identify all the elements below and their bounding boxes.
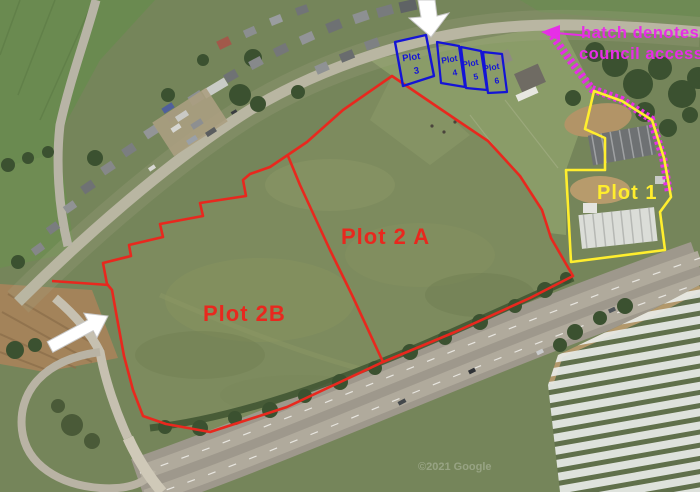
imagery-watermark: ©2021 Google [418, 461, 492, 473]
tree [87, 150, 103, 166]
note-line-1: hatch denotes [581, 24, 699, 42]
tree [565, 90, 581, 106]
plot1-label: Plot 1 [597, 182, 657, 204]
tree [161, 88, 175, 102]
plot2b-label: Plot 2B [203, 301, 286, 326]
aerial-plot-plan: Plot 1 Plot 2 A Plot 2B Plot 3 Plot 4 Pl… [0, 0, 700, 492]
tree [229, 84, 251, 106]
aerial-basemap: Plot 1 Plot 2 A Plot 2B Plot 3 Plot 4 Pl… [0, 0, 700, 492]
tree [28, 338, 42, 352]
tree [11, 255, 25, 269]
tree [291, 85, 305, 99]
note-line-2: council access [579, 45, 700, 63]
tree [42, 146, 54, 158]
tree [61, 414, 83, 436]
tree [659, 119, 677, 137]
tree [22, 152, 34, 164]
tree [617, 298, 633, 314]
tree [6, 341, 24, 359]
tree [250, 96, 266, 112]
tree [593, 311, 607, 325]
plot2a-label: Plot 2 A [341, 224, 430, 249]
tree [623, 69, 653, 99]
tree [84, 433, 100, 449]
tree [197, 54, 209, 66]
tree [682, 107, 698, 123]
shed [583, 203, 597, 213]
tree [567, 324, 583, 340]
tree [51, 399, 65, 413]
tree [553, 338, 567, 352]
tree [1, 158, 15, 172]
